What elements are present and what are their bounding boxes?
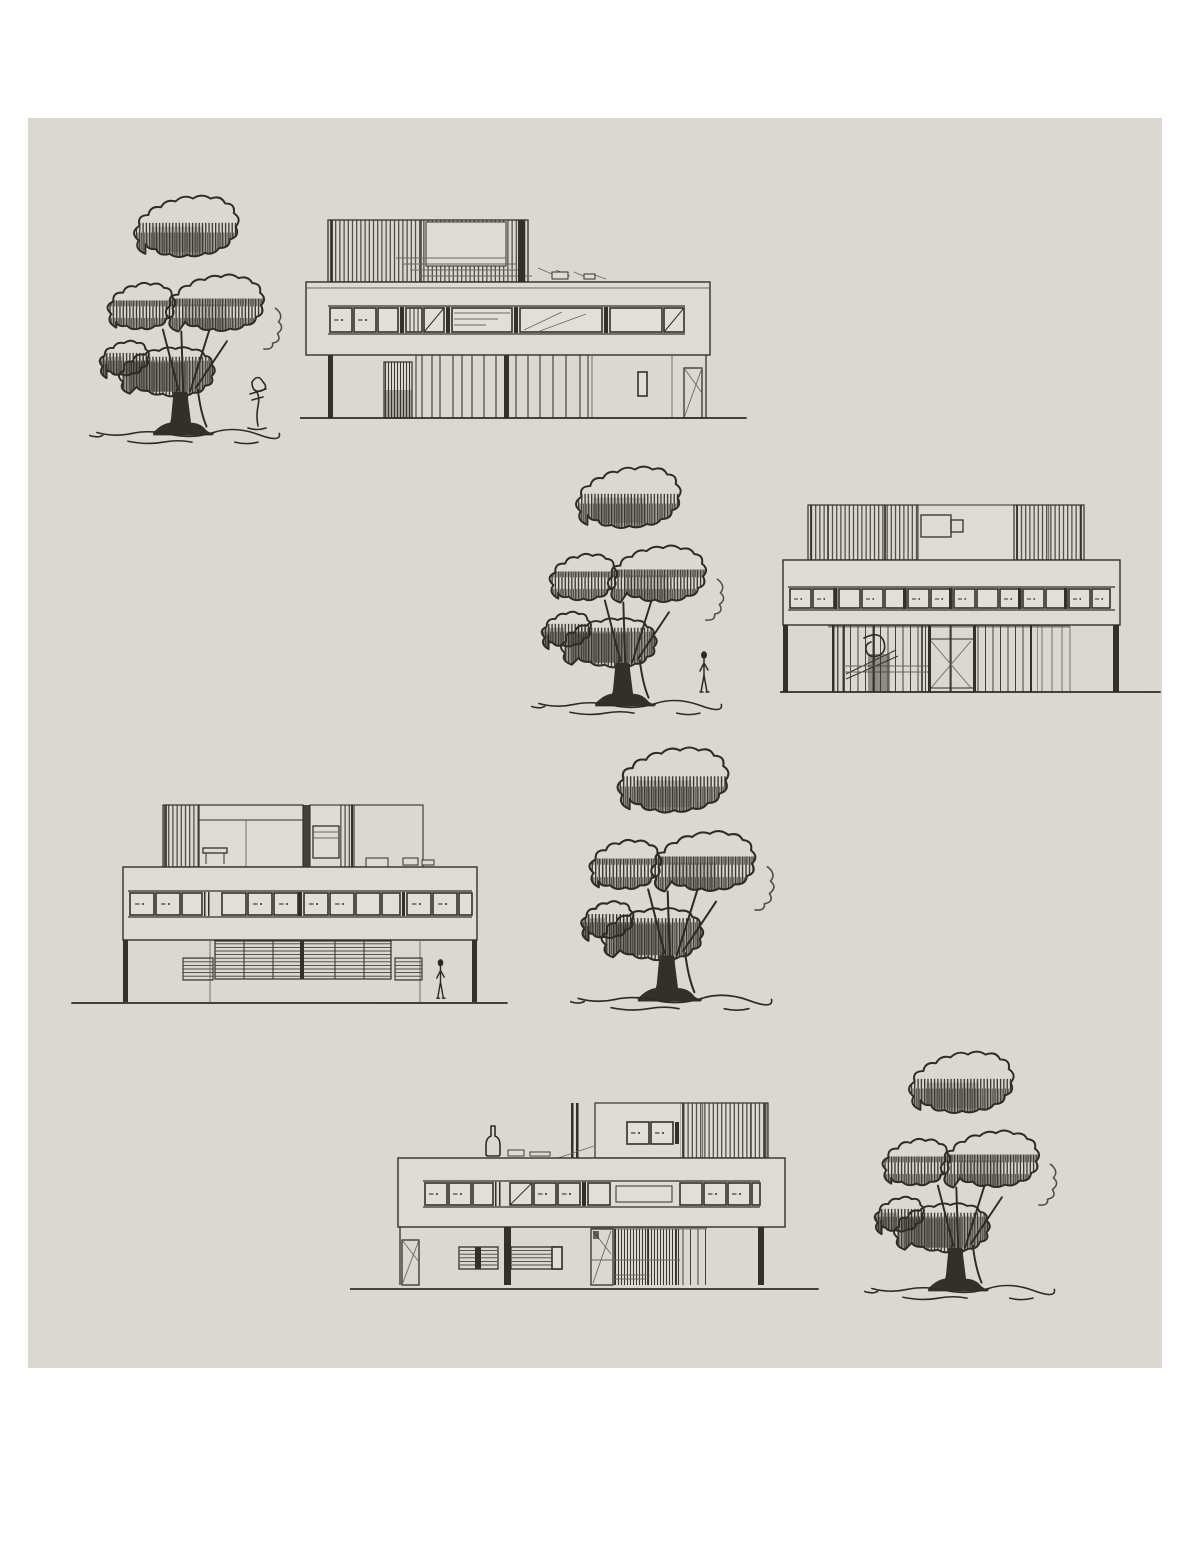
mast <box>571 1103 574 1158</box>
building-elevation-1 <box>300 212 748 424</box>
louver-window <box>395 958 422 980</box>
sapling-sketch <box>238 370 278 432</box>
slot-window <box>638 372 647 396</box>
ribbon-window-band <box>328 306 685 334</box>
entrance-door <box>928 625 976 692</box>
tree-sketch-4 <box>860 1040 1074 1304</box>
piloti <box>1113 625 1119 692</box>
ribbon-window-band <box>788 587 1115 610</box>
ribbon-window-band <box>128 891 472 917</box>
ground-floor <box>328 355 706 418</box>
entry-glazing <box>591 1229 707 1285</box>
person-sketch-row3 <box>437 959 445 998</box>
rooftop-structure <box>328 220 606 282</box>
ground-floor <box>783 625 1119 692</box>
chimney <box>518 220 525 282</box>
piloti <box>504 1227 511 1285</box>
piloti <box>123 940 128 1002</box>
sketch-page <box>0 0 1200 1553</box>
recessed-opening <box>616 1186 672 1202</box>
ribbon-window-band <box>423 1181 760 1207</box>
mast <box>576 1103 579 1158</box>
piloti <box>783 625 788 692</box>
piloti <box>758 1227 764 1285</box>
drawing-panel <box>28 118 1162 1368</box>
tree-sketch-3 <box>570 732 788 1018</box>
rooftop-structure <box>486 1103 768 1158</box>
rooftop-window <box>627 1122 679 1144</box>
piloti <box>328 355 333 418</box>
piloti <box>472 940 477 1002</box>
bottle-sketch <box>486 1126 500 1156</box>
building-elevation-3 <box>70 798 510 1010</box>
louver-window <box>183 958 213 980</box>
ground-floor <box>400 1227 764 1285</box>
piloti <box>504 355 509 418</box>
building-elevation-4 <box>350 1094 820 1294</box>
person-sketch-row2 <box>696 650 712 696</box>
building-elevation-2 <box>780 498 1162 698</box>
rooftop-structure <box>163 805 434 867</box>
ground-floor <box>123 940 477 1002</box>
rooftop-structure <box>808 505 1084 560</box>
louver-array <box>215 941 391 979</box>
